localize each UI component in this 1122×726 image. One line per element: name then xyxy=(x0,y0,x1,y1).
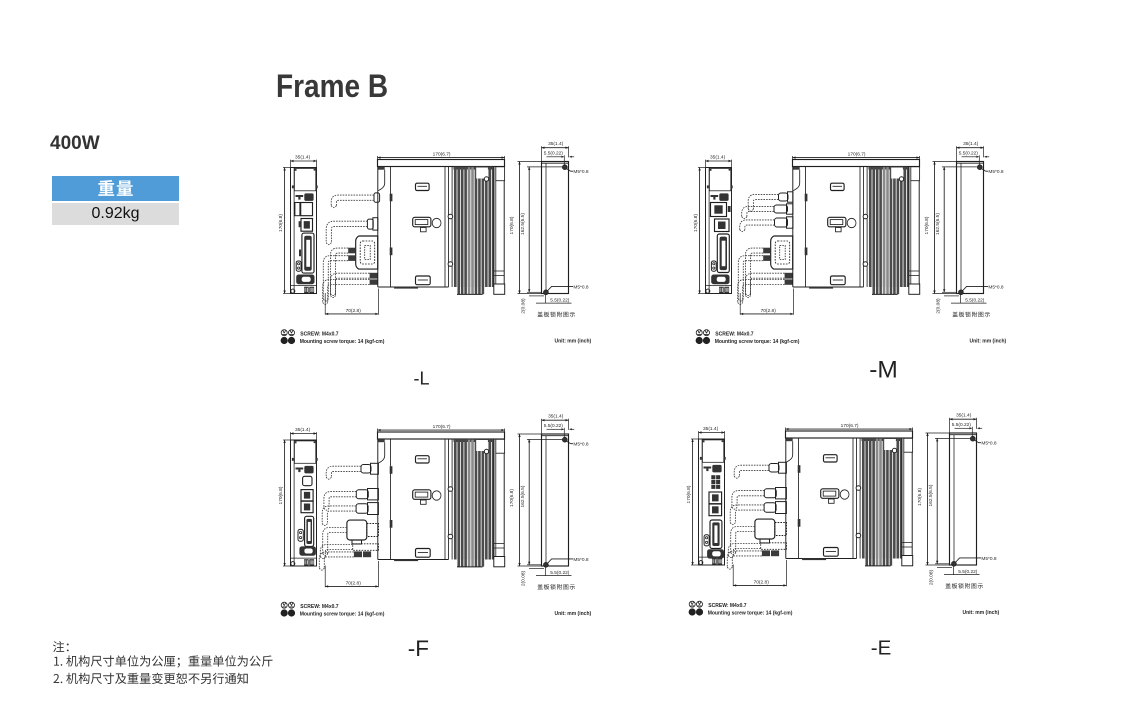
svg-text:Unit: mm (inch): Unit: mm (inch) xyxy=(970,339,1007,345)
svg-text:35(1.4): 35(1.4) xyxy=(295,427,311,433)
svg-text:35(1.4): 35(1.4) xyxy=(295,155,311,161)
svg-text:5.5(0.22): 5.5(0.22) xyxy=(550,297,570,303)
svg-text:Mounting screw torque: 14 (kgf: Mounting screw torque: 14 (kgf-cm) xyxy=(715,339,800,345)
svg-text:162.5(6.5): 162.5(6.5) xyxy=(520,485,526,507)
svg-text:Mounting screw torque: 14 (kgf: Mounting screw torque: 14 (kgf-cm) xyxy=(300,339,385,345)
svg-text:70(2.8): 70(2.8) xyxy=(346,580,362,586)
svg-text:5.5(0.22): 5.5(0.22) xyxy=(550,570,570,576)
svg-text:70(2.8): 70(2.8) xyxy=(761,308,777,314)
svg-text:170(6.8): 170(6.8) xyxy=(686,485,692,503)
svg-text:35(1.4): 35(1.4) xyxy=(703,426,719,432)
svg-text:SCREW: M4x0.7: SCREW: M4x0.7 xyxy=(300,604,338,610)
svg-text:35(1.4): 35(1.4) xyxy=(548,414,564,420)
svg-text:35(1.4): 35(1.4) xyxy=(548,141,564,147)
svg-text:70(2.8): 70(2.8) xyxy=(754,579,770,585)
svg-text:M5*0.8: M5*0.8 xyxy=(988,284,1004,290)
svg-text:M5*0.8: M5*0.8 xyxy=(573,442,589,448)
svg-text:5.5(0.22): 5.5(0.22) xyxy=(958,569,978,575)
svg-text:170(6.8): 170(6.8) xyxy=(917,488,923,506)
svg-text:M5*0.8: M5*0.8 xyxy=(981,441,997,447)
svg-text:170(6.7): 170(6.7) xyxy=(841,423,859,429)
svg-text:170(6.7): 170(6.7) xyxy=(433,151,451,157)
svg-text:162.5(6.5): 162.5(6.5) xyxy=(520,213,526,235)
svg-text:5.5(0.22): 5.5(0.22) xyxy=(965,297,985,303)
svg-text:Unit: mm (inch): Unit: mm (inch) xyxy=(963,610,1000,616)
svg-text:170(6.7): 170(6.7) xyxy=(848,151,866,157)
svg-text:162.5(6.5): 162.5(6.5) xyxy=(928,484,934,506)
svg-text:SCREW: M4x0.7: SCREW: M4x0.7 xyxy=(715,331,753,337)
svg-text:5.5(0.22): 5.5(0.22) xyxy=(959,151,979,157)
svg-text:-E: -E xyxy=(871,637,892,660)
svg-text:170(6.8): 170(6.8) xyxy=(278,214,284,232)
svg-text:-F: -F xyxy=(408,636,429,661)
svg-text:170(6.8): 170(6.8) xyxy=(509,216,515,234)
svg-text:M5*0.8: M5*0.8 xyxy=(573,169,589,175)
svg-text:M5*0.8: M5*0.8 xyxy=(988,169,1004,175)
svg-text:M5*0.8: M5*0.8 xyxy=(981,556,997,562)
svg-text:170(6.8): 170(6.8) xyxy=(924,216,930,234)
svg-text:M5*0.8: M5*0.8 xyxy=(573,557,589,563)
svg-text:-L: -L xyxy=(413,369,429,389)
svg-text:Mounting screw torque: 14 (kgf: Mounting screw torque: 14 (kgf-cm) xyxy=(708,610,793,616)
svg-text:5.5(0.22): 5.5(0.22) xyxy=(544,423,564,429)
svg-text:5.5(0.22): 5.5(0.22) xyxy=(952,422,972,428)
svg-text:-M: -M xyxy=(869,357,898,384)
svg-text:2(0.08): 2(0.08) xyxy=(929,570,935,586)
svg-text:162.5(6.5): 162.5(6.5) xyxy=(935,213,941,235)
svg-text:M5*0.8: M5*0.8 xyxy=(573,284,589,290)
svg-text:2(0.08): 2(0.08) xyxy=(521,298,527,314)
svg-text:SCREW: M4x0.7: SCREW: M4x0.7 xyxy=(300,331,338,337)
svg-text:170(6.8): 170(6.8) xyxy=(693,214,699,232)
svg-text:35(1.4): 35(1.4) xyxy=(963,141,979,147)
svg-text:2(0.08): 2(0.08) xyxy=(936,298,942,314)
svg-text:35(1.4): 35(1.4) xyxy=(710,155,726,161)
svg-text:35(1.4): 35(1.4) xyxy=(956,413,972,419)
svg-text:Unit: mm (inch): Unit: mm (inch) xyxy=(555,339,592,345)
svg-text:170(6.8): 170(6.8) xyxy=(509,489,515,507)
svg-text:70(2.8): 70(2.8) xyxy=(346,308,362,314)
svg-text:Mounting screw torque: 14 (kgf: Mounting screw torque: 14 (kgf-cm) xyxy=(300,611,385,617)
svg-text:SCREW: M4x0.7: SCREW: M4x0.7 xyxy=(708,603,746,609)
svg-text:2(0.08): 2(0.08) xyxy=(521,571,527,587)
svg-text:170(6.8): 170(6.8) xyxy=(278,486,284,504)
svg-text:Unit: mm (inch): Unit: mm (inch) xyxy=(555,611,592,617)
svg-text:170(6.7): 170(6.7) xyxy=(433,424,451,430)
svg-text:5.5(0.22): 5.5(0.22) xyxy=(544,151,564,157)
